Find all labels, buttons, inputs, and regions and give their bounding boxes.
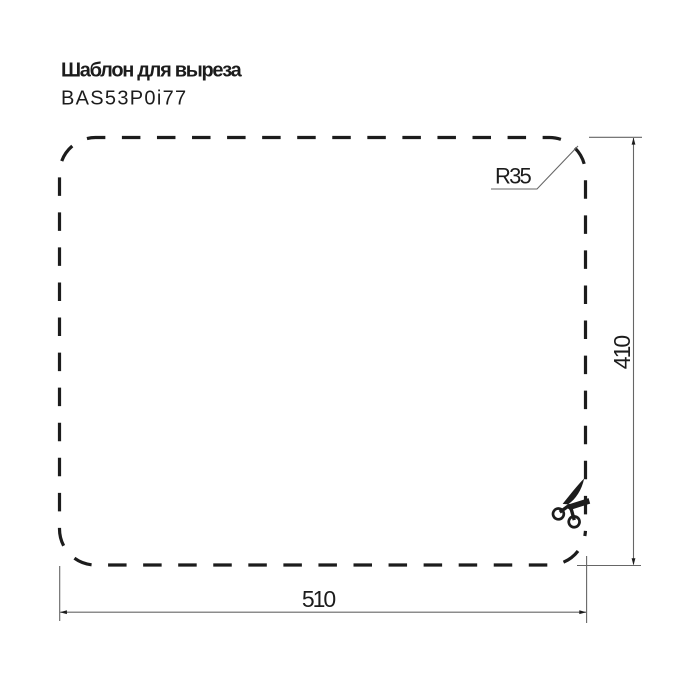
svg-text:410: 410 — [609, 336, 635, 370]
svg-text:R35: R35 — [495, 164, 532, 189]
svg-text:BAS53P0i77: BAS53P0i77 — [61, 88, 187, 110]
svg-text:510: 510 — [302, 586, 336, 612]
svg-text:Шаблон для выреза: Шаблон для выреза — [61, 60, 243, 82]
